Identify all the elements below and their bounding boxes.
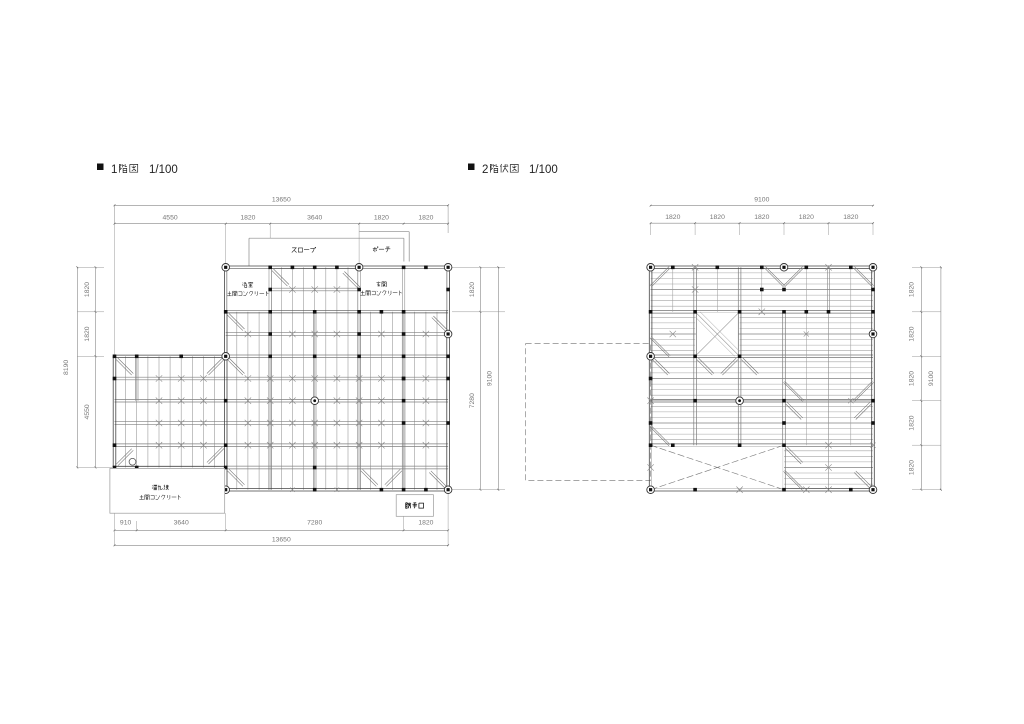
svg-text:1/100: 1/100 xyxy=(149,164,178,176)
svg-text:1820: 1820 xyxy=(799,214,814,221)
svg-text:1820: 1820 xyxy=(418,215,433,222)
svg-text:9100: 9100 xyxy=(487,371,494,386)
svg-text:1820: 1820 xyxy=(909,371,916,386)
svg-text:13650: 13650 xyxy=(272,197,291,204)
svg-text:9100: 9100 xyxy=(928,371,935,386)
svg-text:1820: 1820 xyxy=(909,415,916,430)
svg-text:4550: 4550 xyxy=(163,215,178,222)
svg-text:1: 1 xyxy=(111,164,117,176)
svg-text:3640: 3640 xyxy=(174,520,189,527)
svg-text:13650: 13650 xyxy=(272,537,291,544)
svg-text:1820: 1820 xyxy=(84,326,91,341)
svg-text:1820: 1820 xyxy=(754,214,769,221)
svg-text:910: 910 xyxy=(120,520,132,527)
svg-text:1820: 1820 xyxy=(909,460,916,475)
svg-text:1/100: 1/100 xyxy=(529,164,558,176)
svg-text:7280: 7280 xyxy=(469,393,476,408)
svg-text:1820: 1820 xyxy=(909,282,916,297)
svg-text:1820: 1820 xyxy=(710,214,725,221)
svg-text:9100: 9100 xyxy=(754,197,769,204)
svg-text:2: 2 xyxy=(482,164,488,176)
svg-text:4550: 4550 xyxy=(84,404,91,419)
svg-text:1820: 1820 xyxy=(469,282,476,297)
svg-text:7280: 7280 xyxy=(307,520,322,527)
svg-text:1820: 1820 xyxy=(843,214,858,221)
svg-text:1820: 1820 xyxy=(418,520,433,527)
svg-text:1820: 1820 xyxy=(909,326,916,341)
svg-text:1820: 1820 xyxy=(84,282,91,297)
svg-text:1820: 1820 xyxy=(240,215,255,222)
svg-text:1820: 1820 xyxy=(665,214,680,221)
svg-text:8190: 8190 xyxy=(63,360,70,375)
svg-text:1820: 1820 xyxy=(374,215,389,222)
svg-text:3640: 3640 xyxy=(307,215,322,222)
